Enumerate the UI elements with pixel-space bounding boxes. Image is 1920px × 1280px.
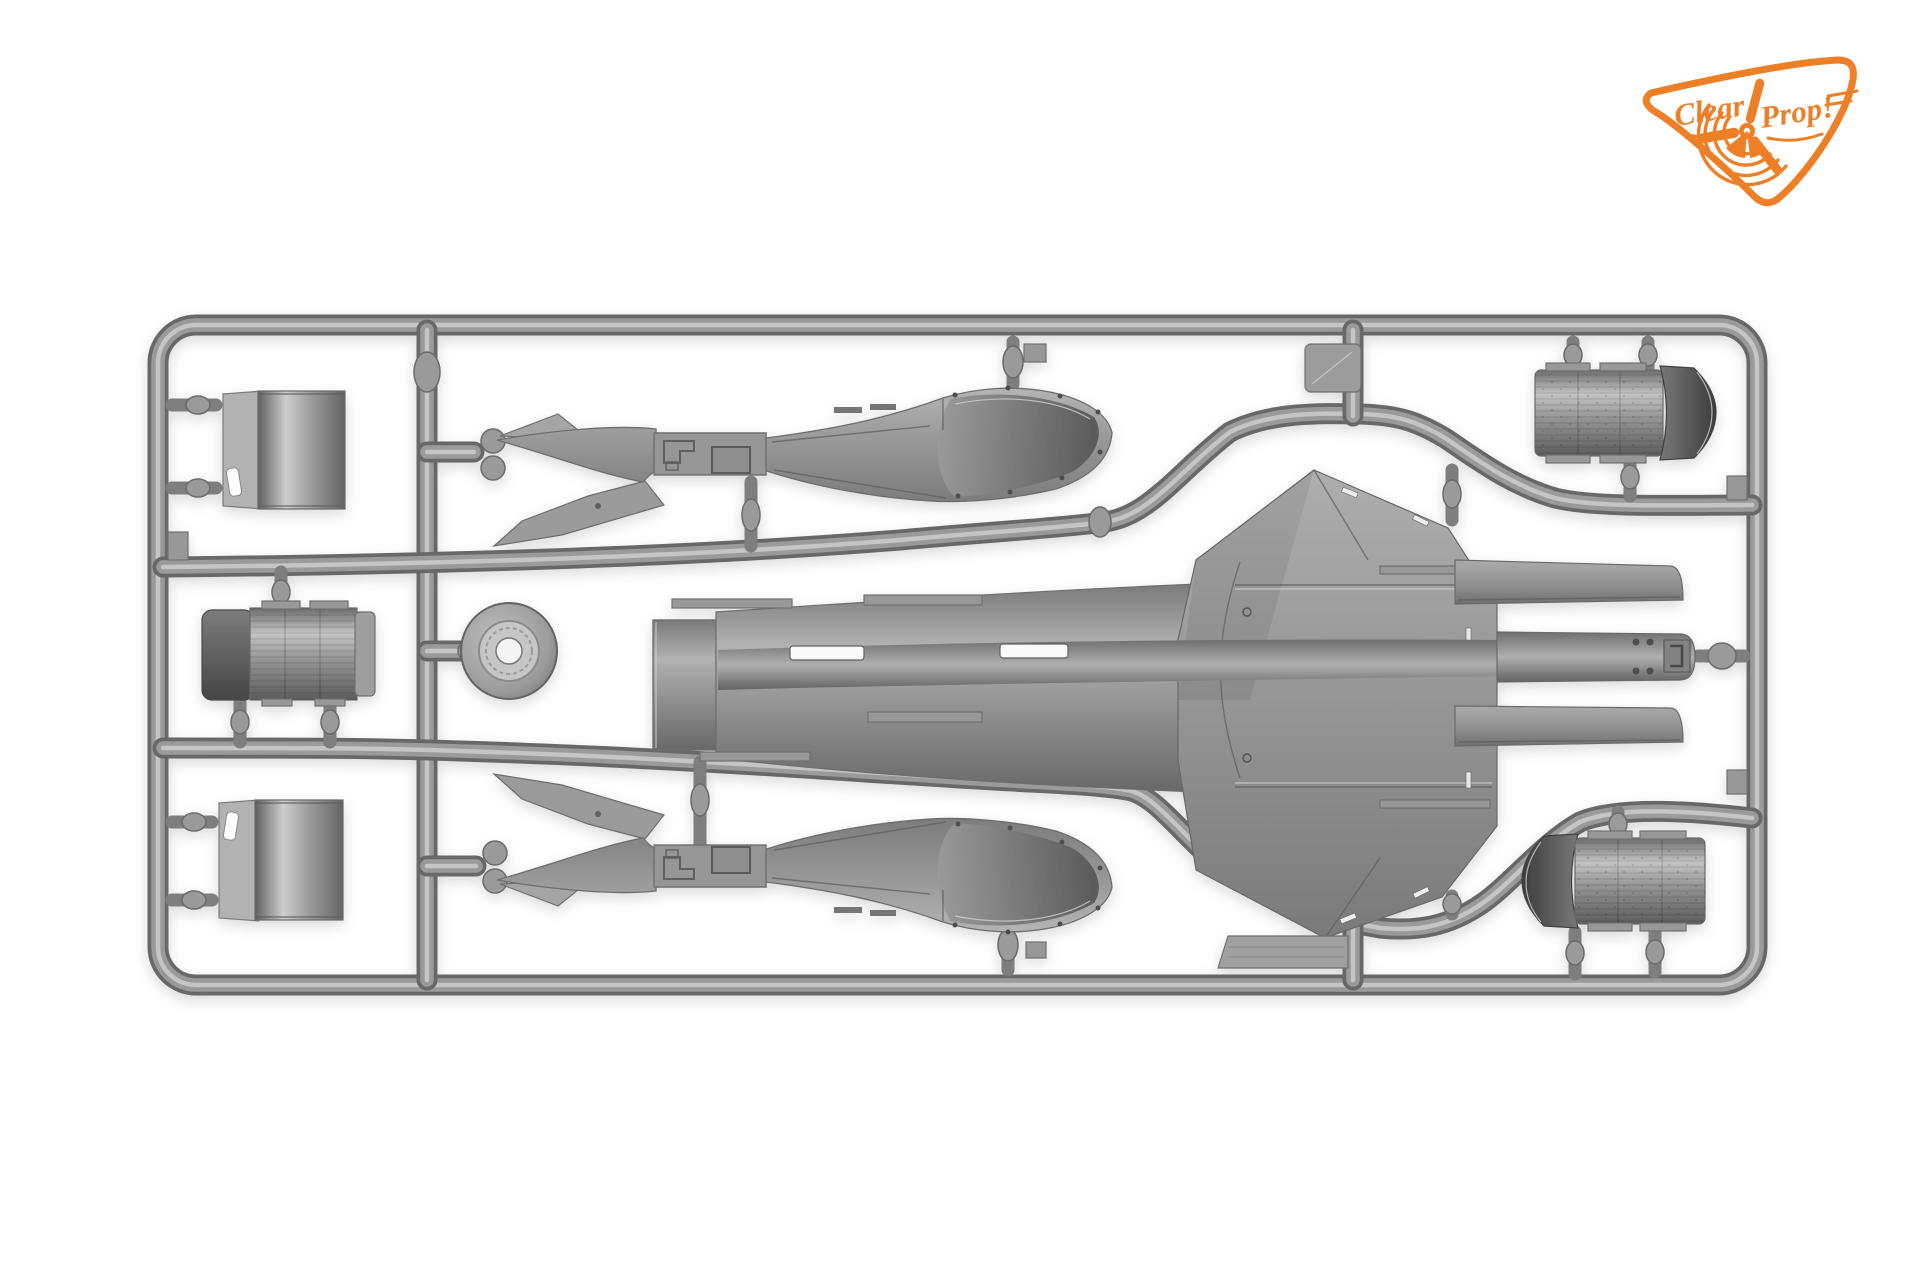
part-flat-rect-panel-bottom <box>1218 936 1348 968</box>
part-engine-cylinder-left <box>202 601 375 706</box>
part-small-rect-tab-top <box>1305 344 1361 392</box>
part-nozzle-disc <box>461 603 557 699</box>
part-booster-drum-upper-right <box>1535 363 1716 463</box>
part-cowl-panel-lower-left <box>219 800 343 921</box>
sprue-photo: Clear Prop! <box>0 0 1920 1280</box>
part-cowl-panel-upper-left <box>223 391 345 509</box>
part-booster-drum-lower-right <box>1522 831 1705 931</box>
photo-stage: Clear Prop! <box>0 0 1920 1280</box>
